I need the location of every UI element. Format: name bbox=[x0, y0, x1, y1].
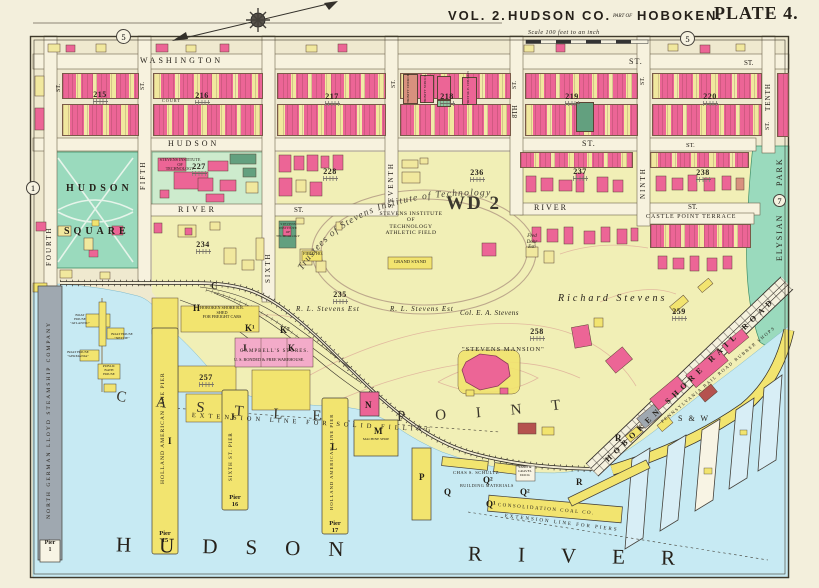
rowhouse-block bbox=[520, 152, 633, 168]
church-building bbox=[576, 102, 594, 132]
street-label-sixth: SIXTH bbox=[265, 242, 273, 294]
estate-label: Fred Dohr Est. bbox=[518, 234, 546, 251]
block-number: 220 bbox=[693, 92, 727, 106]
block-number: 235 bbox=[323, 290, 357, 304]
scale-bar bbox=[526, 40, 648, 44]
street-label-seventh-st: ST. bbox=[391, 76, 398, 92]
block-number: 257 bbox=[189, 373, 223, 387]
campbells-stores-label: CAMPBELL'S STORES. bbox=[240, 349, 309, 355]
rowhouse-block bbox=[153, 104, 263, 136]
ref-letter: P bbox=[419, 472, 425, 482]
hudson-square-label: HUDSON bbox=[66, 183, 133, 194]
block-number: 228 bbox=[313, 167, 347, 181]
block-number: 219 bbox=[555, 92, 589, 106]
pier-label-sixth-st: SIXTH ST. PIER bbox=[229, 424, 235, 490]
street-label-fourth: FOURTH bbox=[46, 224, 54, 268]
pier-number: Pier 15 bbox=[151, 530, 179, 545]
title-part-of: PART OF bbox=[613, 14, 632, 20]
street-label-ninth: NINTH bbox=[640, 162, 648, 204]
street-label-river-west: RIVER bbox=[178, 206, 217, 215]
bath-house-label: PUBLIC BATH HOUSE bbox=[94, 365, 124, 377]
block-number: 258 bbox=[520, 327, 554, 341]
street-label-court: COURT bbox=[162, 99, 181, 104]
street-label-eighth-st: ST. bbox=[512, 77, 519, 92]
street-label-hudson-st: ST. bbox=[582, 140, 596, 149]
pier-number: Pier 17 bbox=[321, 520, 349, 535]
street-label-river-east: RIVER bbox=[534, 204, 568, 213]
street-label-tenth-st: ST. bbox=[765, 118, 772, 133]
ref-letter: N bbox=[365, 400, 372, 410]
building-materials-label: BUILDING MATERIALS bbox=[460, 484, 514, 489]
freight-shed-label: HOBOKEN SHORE R.R. SHED FOR FREIGHT CARS bbox=[182, 306, 262, 320]
stevens-green-building-label: STEVENS INSTITUTE OF TECHNOLOGY bbox=[276, 223, 300, 239]
grand-stand-label: GRAND STAND bbox=[390, 259, 430, 264]
street-label-river-east-st: ST. bbox=[688, 204, 697, 212]
machine-shop-label: MACHINE SHOP bbox=[354, 438, 398, 442]
street-label-washington-st: ST. bbox=[744, 60, 753, 68]
street-label-fifth: FIFTH bbox=[140, 158, 148, 192]
ref-letter: I bbox=[168, 436, 172, 446]
stevens-mansion-label: "STEVENS MANSION" bbox=[462, 346, 545, 353]
title-plate: PLATE 4. bbox=[714, 3, 799, 23]
church-label: FIRST M. E. CHURCH bbox=[467, 78, 471, 105]
plate-ref-top-right: 5 bbox=[680, 31, 695, 46]
title-city: HOBOKEN. bbox=[637, 9, 723, 24]
estate-label: Richard Stevens bbox=[558, 293, 667, 304]
title-volume: VOL. 2. bbox=[448, 9, 507, 24]
street-label-washington-st: ST. bbox=[629, 58, 643, 67]
pier-label-north-german-lloyd: NORTH GERMAN LLOYD STEAMSHIP COMPANY bbox=[46, 316, 52, 524]
boat-house-label: BOAT HOUSE "NETTIE" bbox=[104, 333, 140, 341]
rowhouse-block bbox=[400, 104, 511, 136]
block-number: 237 bbox=[563, 167, 597, 181]
hudson-square-label: SQUARE bbox=[64, 226, 130, 237]
block-number: 215 bbox=[83, 90, 117, 104]
rowhouse-block bbox=[277, 104, 386, 136]
church-label: TRINITY SCHOOL bbox=[424, 76, 428, 103]
street-label-fifth-st: ST. bbox=[140, 78, 147, 94]
title-county: HUDSON CO. bbox=[508, 9, 611, 24]
hudson-square-park bbox=[53, 152, 138, 268]
pier-number: Pier 16 bbox=[221, 494, 249, 509]
ward-label: WD 2 bbox=[446, 193, 501, 214]
pier-label-holland-american: HOLLAND AMERICAN LINE PIER bbox=[160, 342, 166, 514]
estate-label: R. L. Stevens Est bbox=[390, 306, 454, 314]
street-label-eighth: 8TH bbox=[512, 100, 520, 124]
ref-letter: K² bbox=[280, 325, 290, 335]
street-label-hudson: HUDSON bbox=[168, 140, 219, 149]
street-label-washington: WASHINGTON bbox=[140, 57, 223, 66]
block-number: 217 bbox=[315, 92, 349, 106]
estate-label: Col. E. A. Stevens bbox=[460, 310, 519, 318]
rowhouse-block bbox=[62, 104, 139, 136]
ref-letter: K¹ bbox=[245, 323, 255, 333]
rowhouse-block bbox=[650, 152, 749, 168]
athletic-field-label: STEVENS INSTITUTE OF TECHNOLOGY ATHLETIC… bbox=[372, 211, 450, 236]
street-label-hudson-st: ST. bbox=[686, 142, 695, 149]
estate-label: R. L. Stevens Est bbox=[296, 306, 360, 314]
ref-letter: R bbox=[576, 477, 583, 487]
sw-label: S & W bbox=[678, 415, 710, 424]
field-house-label: FIELD HO. bbox=[302, 252, 324, 257]
block-number: 218 bbox=[430, 92, 464, 106]
elysian-park-label: PARK bbox=[776, 156, 785, 188]
schultz-label: CHAS S. SCHULTZ bbox=[453, 470, 499, 475]
plate-ref-right: 7 bbox=[773, 194, 786, 207]
rowhouse-block bbox=[652, 104, 762, 136]
ref-letter: C bbox=[211, 281, 218, 291]
rowhouse-block bbox=[777, 73, 789, 137]
block-number: 216 bbox=[185, 91, 219, 105]
block-number: 238 bbox=[686, 168, 720, 182]
street-label-river-west-st: ST. bbox=[294, 207, 303, 215]
scale-text: Scale 100 feet to an inch bbox=[528, 30, 600, 37]
rowhouse-block bbox=[650, 224, 751, 248]
sand-gravel-dock-label: SAND & GRAVEL DOCK bbox=[514, 466, 536, 478]
boat-house-label: BOAT HOUSE "ATLANTIC" bbox=[62, 314, 98, 326]
block-number: 234 bbox=[186, 240, 220, 254]
plate-ref-top-left: 5 bbox=[116, 29, 131, 44]
block-number: 236 bbox=[460, 168, 494, 182]
church-label: TRINITY CHURCH bbox=[407, 75, 411, 103]
ref-letter: Q¹ bbox=[486, 499, 496, 509]
atlas-plate: CASTLE POINT Trustees of Stevens Institu… bbox=[0, 0, 819, 588]
block-number: 259 bbox=[662, 307, 696, 321]
elysian-park-label: ELYSIAN bbox=[776, 210, 785, 264]
pier-number: Pier 1 bbox=[38, 540, 62, 553]
street-label-seventh: SEVENTH bbox=[388, 156, 396, 214]
boat-house-label: BOAT HOUSE "GERMANIA" bbox=[60, 351, 96, 359]
campbells-stores-sublabel: U. S. BONDED & FREE WAREHOUSE. bbox=[234, 358, 304, 363]
street-label-tenth: TENTH bbox=[765, 80, 773, 114]
ref-letter: Q bbox=[444, 487, 451, 497]
street-label-fourth-st: ST. bbox=[56, 80, 63, 96]
stevens-campus-label: STEVENS INSTITUTE OF TECHNOLOGY bbox=[152, 158, 208, 172]
street-label-castle-point-terrace: CASTLE POINT TERRACE bbox=[646, 214, 736, 221]
ref-letter: Q² bbox=[520, 487, 530, 497]
compass-rose-icon bbox=[172, 1, 338, 41]
plate-ref-left: 1 bbox=[26, 181, 40, 195]
street-label-ninth-st: ST. bbox=[640, 73, 647, 88]
